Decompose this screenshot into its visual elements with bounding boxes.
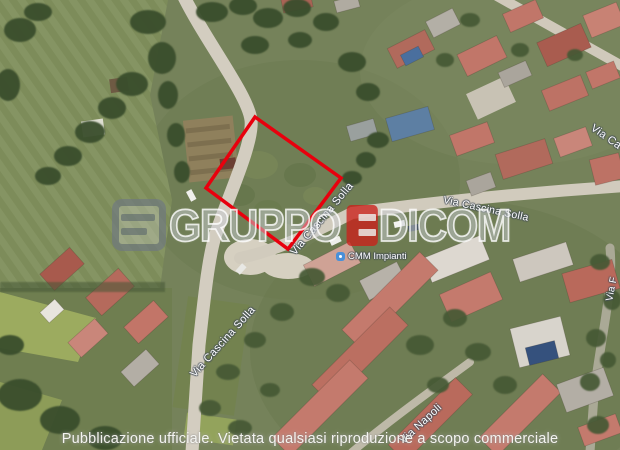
- gruppo-edicom-watermark: GRUPPO DICOM: [112, 194, 540, 256]
- watermark-suffix: DICOM: [379, 203, 510, 248]
- edicom-logo-icon: [112, 199, 166, 251]
- edicom-e-logo-icon: [347, 205, 378, 246]
- aerial-map-screenshot: Via Cascina Solla Via Cascina Solla Via …: [0, 0, 620, 450]
- official-publication-disclaimer: Pubblicazione ufficiale. Vietata qualsia…: [0, 431, 620, 447]
- watermark-prefix: GRUPPO: [169, 203, 340, 248]
- watermark-wordmark: GRUPPO DICOM: [169, 203, 510, 248]
